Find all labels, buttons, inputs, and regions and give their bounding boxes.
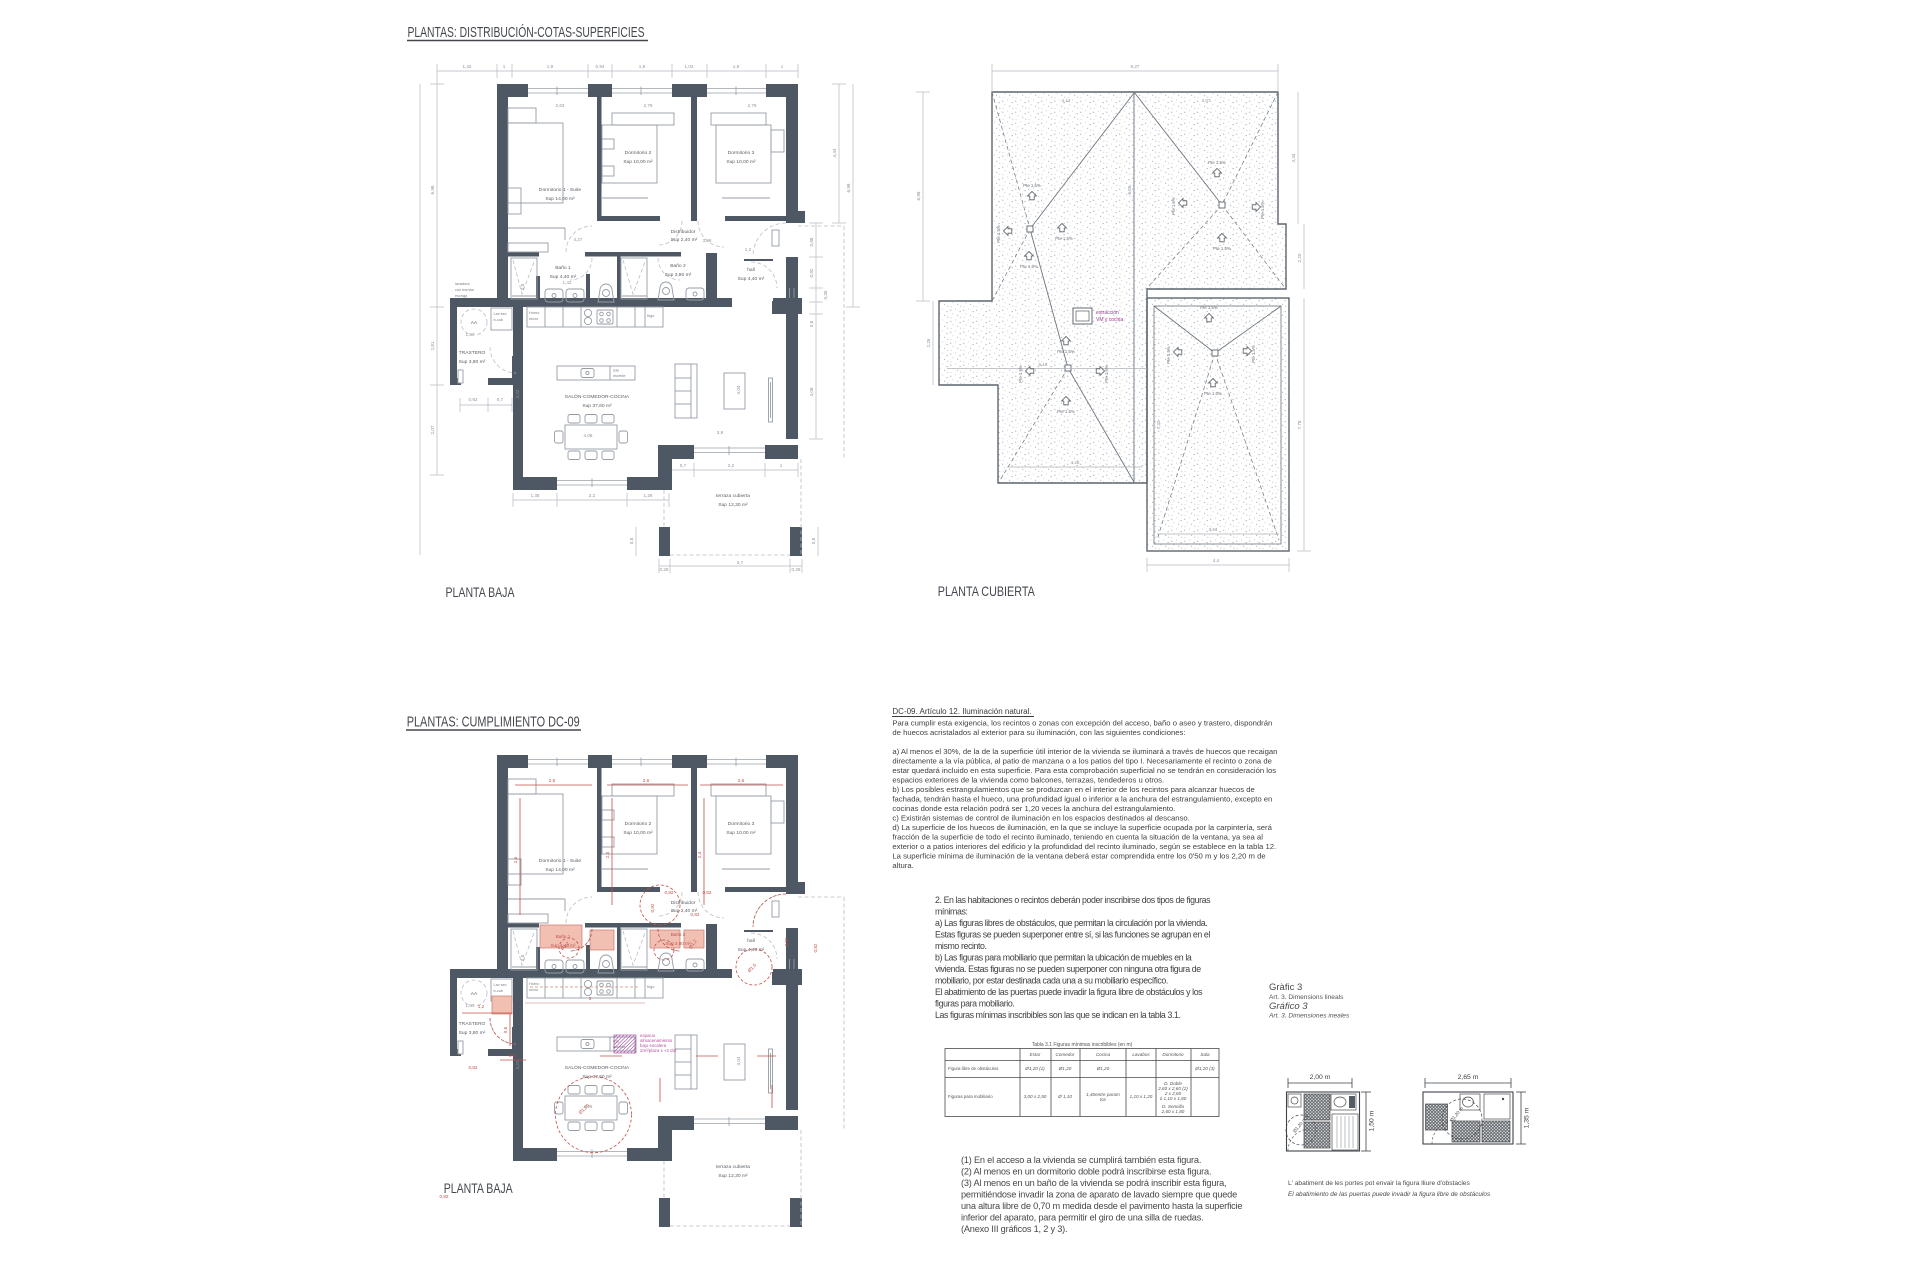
- svg-text:Baño 2: Baño 2: [671, 932, 686, 937]
- svg-text:(2) Al menos en un dormitorio: (2) Al menos en un dormitorio doble podr…: [961, 1167, 1211, 1177]
- svg-text:0,8: 0,8: [629, 537, 634, 544]
- svg-text:Dormitorio: Dormitorio: [1162, 1052, 1184, 1057]
- svg-text:4,07: 4,07: [1202, 98, 1211, 103]
- svg-text:2,00 m: 2,00 m: [1310, 1074, 1331, 1081]
- svg-text:1,35: 1,35: [531, 493, 540, 498]
- svg-text:1,67: 1,67: [466, 332, 475, 337]
- svg-text:2,6: 2,6: [549, 778, 556, 783]
- svg-text:1,26: 1,26: [644, 493, 653, 498]
- svg-text:Dormitorio 3: Dormitorio 3: [728, 150, 755, 156]
- svg-text:Sup 37,60 m²: Sup 37,60 m²: [582, 403, 612, 409]
- svg-text:3: 3: [589, 996, 592, 1001]
- svg-text:DC-09. Artículo 12. Iluminació: DC-09. Artículo 12. Iluminación natural.: [892, 707, 1031, 716]
- svg-text:Gráfico 3: Gráfico 3: [1269, 1001, 1308, 1012]
- svg-text:Lavabos: Lavabos: [1132, 1052, 1150, 1057]
- svg-text:Sup 14,00 m²: Sup 14,00 m²: [545, 196, 575, 202]
- svg-text:6,98: 6,98: [846, 183, 851, 192]
- svg-text:2,2: 2,2: [589, 493, 596, 498]
- svg-text:1,9: 1,9: [639, 64, 646, 69]
- svg-text:4,26: 4,26: [1071, 460, 1080, 465]
- svg-text:El abatimiento de las puertas: El abatimiento de las puertas puede inva…: [1288, 1191, 1491, 1198]
- svg-text:4,4: 4,4: [1213, 558, 1220, 563]
- svg-text:AA: AA: [471, 320, 478, 326]
- svg-text:tos: tos: [1100, 1097, 1107, 1102]
- svg-text:Pte 1.5%: Pte 1.5%: [1020, 264, 1038, 269]
- svg-text:0,26: 0,26: [792, 567, 801, 572]
- svg-text:0,82: 0,82: [784, 937, 789, 946]
- svg-text:6,26: 6,26: [1127, 185, 1132, 194]
- svg-text:7,32: 7,32: [1156, 420, 1161, 429]
- svg-text:Las figuras mínimas inscribibl: Las figuras mínimas inscribibles son las…: [935, 1010, 1181, 1020]
- svg-text:inferior del aparato, para per: inferior del aparato, para permitir el g…: [961, 1213, 1203, 1223]
- svg-text:b) Los posibles estrangulamien: b) Los posibles estrangulamientos que se…: [892, 785, 1254, 794]
- svg-text:0,82: 0,82: [665, 890, 674, 895]
- svg-text:0,92: 0,92: [650, 903, 655, 912]
- svg-text:2,65 m: 2,65 m: [1458, 1074, 1479, 1081]
- svg-text:1,9: 1,9: [547, 64, 554, 69]
- svg-text:Pte 1.5%: Pte 1.5%: [1204, 391, 1222, 396]
- svg-text:3,66: 3,66: [703, 238, 712, 243]
- svg-text:0,88: 0,88: [809, 237, 814, 246]
- svg-text:Ø1,20 (1): Ø1,20 (1): [1024, 1066, 1045, 1071]
- svg-text:PLANTA CUBIERTA: PLANTA CUBIERTA: [938, 583, 1035, 599]
- svg-text:1,42: 1,42: [463, 64, 472, 69]
- svg-text:0,7: 0,7: [497, 397, 504, 402]
- svg-text:1,42: 1,42: [563, 280, 572, 285]
- svg-text:Horno: Horno: [529, 311, 539, 315]
- svg-text:6,98: 6,98: [916, 191, 921, 200]
- svg-text:Pte 1.5%: Pte 1.5%: [1251, 345, 1256, 363]
- svg-text:4,06: 4,06: [584, 433, 593, 438]
- svg-text:espacios exteriores de la vivi: espacios exteriores de la vivienda como …: [892, 776, 1164, 785]
- svg-text:0,6: 0,6: [509, 1053, 516, 1058]
- svg-text:7,78: 7,78: [1297, 420, 1302, 429]
- svg-text:1: 1: [780, 463, 783, 468]
- svg-text:La superficie mínima de ilumin: La superficie mínima de iluminación de l…: [892, 852, 1265, 861]
- svg-text:Figuras para mobiliario: Figuras para mobiliario: [948, 1094, 993, 1099]
- svg-text:2,26: 2,26: [926, 338, 931, 347]
- svg-text:directamente a la vía pública,: directamente a la vía pública, al patio …: [892, 757, 1271, 766]
- svg-text:Pte 1.5%: Pte 1.5%: [1055, 236, 1073, 241]
- svg-text:3,22: 3,22: [515, 389, 520, 398]
- svg-text:PLANTAS: DISTRIBUCIÓN-COTAS-SU: PLANTAS: DISTRIBUCIÓN-COTAS-SUPERFICIES: [408, 24, 645, 41]
- svg-text:0,7: 0,7: [680, 463, 687, 468]
- svg-text:0,92: 0,92: [809, 268, 814, 277]
- svg-text:4,08: 4,08: [809, 387, 814, 396]
- svg-text:Tabla 3.1 Figuras mínimas ins: Tabla 3.1 Figuras mínimas inscribibles (…: [1032, 1042, 1133, 1048]
- svg-text:2,07: 2,07: [430, 425, 435, 434]
- svg-text:PLANTA BAJA: PLANTA BAJA: [444, 1180, 513, 1196]
- svg-text:1,9: 1,9: [733, 64, 740, 69]
- svg-text:escriga: escriga: [455, 294, 468, 298]
- svg-text:4,27: 4,27: [574, 237, 583, 242]
- svg-text:a) Al menos el 30%, de la de l: a) Al menos el 30%, de la de la superfic…: [892, 747, 1277, 756]
- svg-text:0,82: 0,82: [469, 1065, 478, 1070]
- svg-text:1,2: 1,2: [745, 247, 752, 252]
- svg-text:Sala: Sala: [1200, 1052, 1210, 1057]
- svg-text:1,2: 1,2: [478, 1004, 485, 1009]
- svg-text:0,94: 0,94: [596, 64, 605, 69]
- svg-text:c) Existirán sistemas de contr: c) Existirán sistemas de control de ilum…: [892, 814, 1189, 823]
- svg-text:Baño 2: Baño 2: [670, 263, 686, 269]
- svg-text:Pte 1.5%: Pte 1.5%: [1171, 197, 1176, 215]
- svg-text:Ø 1,10: Ø 1,10: [1057, 1094, 1072, 1099]
- svg-text:Ø1,20: Ø1,20: [1096, 1066, 1110, 1071]
- svg-text:1: 1: [781, 64, 784, 69]
- svg-text:fachada, tendrán hasta el huec: fachada, tendrán hasta el hueco, una pro…: [892, 795, 1272, 804]
- svg-text:0,82: 0,82: [813, 943, 818, 952]
- svg-text:frigo: frigo: [647, 314, 654, 318]
- svg-text:2,6: 2,6: [738, 778, 745, 783]
- svg-text:2,6: 2,6: [643, 778, 650, 783]
- svg-text:TRASTERO: TRASTERO: [459, 350, 486, 356]
- svg-text:0,82: 0,82: [703, 890, 712, 895]
- svg-text:2,81: 2,81: [430, 341, 435, 350]
- svg-text:a) Las figuras libres de obstá: a) Las figuras libres de obstáculos, que…: [935, 918, 1207, 928]
- svg-text:mismo recinto.: mismo recinto.: [935, 941, 987, 951]
- svg-text:3,00 x 2,50: 3,00 x 2,50: [1024, 1094, 1047, 1099]
- svg-text:cocinas donde esta relación po: cocinas donde esta relación podrá ser 1,…: [892, 804, 1175, 813]
- svg-text:ó 1,10 x 1,80: ó 1,10 x 1,80: [1160, 1096, 1187, 1101]
- svg-text:0,26: 0,26: [660, 567, 669, 572]
- svg-text:Ø1,5: Ø1,5: [747, 962, 758, 973]
- svg-text:1,10 x 1,20: 1,10 x 1,20: [1130, 1094, 1153, 1099]
- svg-text:figuras para mobiliario.: figuras para mobiliario.: [935, 999, 1014, 1009]
- svg-text:Pte 1.5%: Pte 1.5%: [1213, 246, 1231, 251]
- svg-text:PLANTAS: CUMPLIMIENTO DC-09: PLANTAS: CUMPLIMIENTO DC-09: [407, 714, 580, 731]
- svg-text:Dormitorio 1 - Suite: Dormitorio 1 - Suite: [539, 187, 581, 193]
- svg-text:El abatimiento de las puertas: El abatimiento de las puertas puede inva…: [935, 987, 1203, 997]
- svg-text:3,9: 3,9: [717, 430, 724, 435]
- svg-text:SALÓN-COMEDOR-COCINA: SALÓN-COMEDOR-COCINA: [565, 393, 630, 400]
- svg-text:3,7: 3,7: [737, 560, 744, 565]
- svg-text:2,20: 2,20: [1297, 253, 1302, 262]
- svg-text:Sup 3,80 m²: Sup 3,80 m²: [665, 272, 692, 278]
- svg-text:Ø1,20 m: Ø1,20 m: [1449, 1106, 1464, 1123]
- svg-text:Sup 2,40 m²: Sup 2,40 m²: [671, 237, 698, 243]
- svg-text:(3) Al menos en un baño de la: (3) Al menos en un baño de la vivienda s…: [961, 1178, 1226, 1188]
- svg-text:5,16: 5,16: [1039, 362, 1048, 367]
- svg-text:Pte 1.5%: Pte 1.5%: [1166, 346, 1171, 364]
- svg-text:Comedor: Comedor: [1056, 1052, 1075, 1057]
- svg-text:mínimas:: mínimas:: [935, 907, 967, 917]
- svg-text:d) La superficie de los huecos: d) La superficie de los huecos de ilumin…: [892, 823, 1272, 832]
- svg-text:Art. 3. Dimensiones ineales: Art. 3. Dimensiones ineales: [1268, 1013, 1350, 1020]
- svg-text:Sup 4,40 m²: Sup 4,40 m²: [738, 276, 765, 282]
- svg-text:Pte 1.5%: Pte 1.5%: [1057, 409, 1075, 414]
- svg-text:con bomba: con bomba: [455, 288, 475, 292]
- svg-text:Sup 10,00 m²: Sup 10,00 m²: [623, 159, 653, 165]
- svg-text:Sup 3,80 m²: Sup 3,80 m²: [459, 359, 486, 365]
- svg-text:Estar: Estar: [1030, 1052, 1041, 1057]
- svg-text:Pte 1.5%: Pte 1.5%: [1260, 201, 1265, 219]
- svg-text:Ø1,20 (3): Ø1,20 (3): [1194, 1066, 1215, 1071]
- svg-text:2m²/plaza x +2 dor: 2m²/plaza x +2 dor: [640, 1048, 677, 1053]
- svg-text:Pte 1.5%: Pte 1.5%: [996, 225, 1001, 243]
- svg-text:altura.: altura.: [892, 861, 913, 870]
- svg-text:Pte 1.5%: Pte 1.5%: [1104, 365, 1109, 383]
- svg-text:de huecos acristalados al exte: de huecos acristalados al exterior para …: [892, 728, 1185, 737]
- svg-text:Art. 3. Dimensions lineals: Art. 3. Dimensions lineals: [1269, 994, 1344, 1001]
- svg-text:Figura libre de obstáculos: Figura libre de obstáculos: [948, 1066, 999, 1071]
- svg-text:6,98: 6,98: [430, 185, 435, 194]
- svg-text:Cocina: Cocina: [1096, 1052, 1111, 1057]
- svg-text:L' abatiment de les portes pot: L' abatiment de les portes pot envair la…: [1288, 1180, 1470, 1187]
- svg-text:PLANTA BAJA: PLANTA BAJA: [446, 584, 515, 600]
- svg-text:mueble: mueble: [613, 374, 625, 378]
- svg-text:b-cub: b-cub: [494, 318, 504, 322]
- svg-text:Baño 1: Baño 1: [555, 265, 571, 271]
- svg-text:1,02: 1,02: [685, 64, 694, 69]
- svg-text:2,4: 2,4: [697, 851, 702, 858]
- svg-text:extracción: extracción: [1096, 310, 1119, 316]
- svg-text:mobiliario, por estar destinad: mobiliario, por estar destinada cada una…: [935, 976, 1168, 986]
- svg-text:b) Las figuras para mobiliario: b) Las figuras para mobiliario que permi…: [935, 953, 1192, 963]
- svg-text:vivienda. Estas figuras no se: vivienda. Estas figuras no se pueden sup…: [935, 964, 1201, 974]
- svg-text:Sup 10,00 m²: Sup 10,00 m²: [726, 159, 756, 165]
- svg-text:Para cumplir esta exigencia, l: Para cumplir esta exigencia, los recinto…: [892, 719, 1272, 728]
- svg-text:1,50 m: 1,50 m: [1369, 1110, 1376, 1131]
- svg-text:2. En las habitaciones o recin: 2. En las habitaciones o recintos deberá…: [935, 895, 1211, 905]
- svg-text:0,82: 0,82: [691, 912, 700, 917]
- svg-text:0,8: 0,8: [811, 537, 816, 544]
- svg-text:4,04: 4,04: [736, 385, 741, 394]
- svg-text:4,14: 4,14: [1062, 98, 1071, 103]
- svg-text:Dormitorio 2: Dormitorio 2: [625, 150, 652, 156]
- svg-text:permitiéndose invadir la zona: permitiéndose invadir la zona de aparato…: [961, 1190, 1237, 1200]
- svg-text:VM y cocina: VM y cocina: [1096, 317, 1123, 323]
- svg-text:2,6: 2,6: [513, 856, 518, 863]
- svg-text:3,64: 3,64: [1209, 527, 1218, 532]
- svg-text:terraza cubierta: terraza cubierta: [716, 493, 750, 499]
- svg-text:exterior o a patios interiores: exterior o a patios interiores del edifi…: [892, 842, 1276, 851]
- svg-text:micro: micro: [529, 317, 538, 321]
- svg-text:0,35: 0,35: [823, 290, 828, 299]
- svg-text:isla: isla: [613, 369, 620, 373]
- svg-text:2,79: 2,79: [644, 103, 653, 108]
- svg-text:Pte 1.5%: Pte 1.5%: [1208, 160, 1226, 165]
- svg-text:Pte 1.5%: Pte 1.5%: [1023, 183, 1041, 188]
- svg-text:Distribuidor: Distribuidor: [671, 229, 696, 235]
- svg-text:4,44: 4,44: [1291, 153, 1296, 162]
- svg-text:Pte 1.5%: Pte 1.5%: [1200, 305, 1218, 310]
- svg-text:Ø1,20: Ø1,20: [1058, 1066, 1072, 1071]
- svg-text:0,6: 0,6: [503, 1026, 508, 1033]
- svg-text:Pte 1.5%: Pte 1.5%: [1018, 365, 1023, 383]
- svg-text:Sup 12,30 m²: Sup 12,30 m²: [718, 502, 748, 508]
- svg-text:hall: hall: [747, 267, 755, 273]
- svg-text:fracción de la superficie de t: fracción de la superficie de todo el rec…: [892, 833, 1263, 842]
- svg-text:0,92: 0,92: [469, 397, 478, 402]
- svg-text:estar quedará incluido en esta: estar quedará incluido en esta superfici…: [892, 766, 1276, 775]
- svg-text:Lav sec: Lav sec: [494, 312, 507, 316]
- svg-text:2,60 x 1,80: 2,60 x 1,80: [1161, 1109, 1185, 1114]
- svg-text:Estas figuras se pueden superp: Estas figuras se pueden superponer entre…: [935, 930, 1210, 940]
- svg-text:(1) En el acceso a la vivienda: (1) En el acceso a la vivienda se cumpli…: [961, 1155, 1201, 1165]
- svg-text:(Anexo III gráficos 1, 2 y 3).: (Anexo III gráficos 1, 2 y 3).: [961, 1224, 1067, 1234]
- svg-text:2,4: 2,4: [605, 851, 610, 858]
- svg-text:2,63: 2,63: [556, 103, 565, 108]
- svg-text:2,79: 2,79: [748, 103, 757, 108]
- svg-text:9,27: 9,27: [1131, 64, 1140, 69]
- svg-text:Gràfic 3: Gràfic 3: [1269, 982, 1302, 993]
- svg-text:2,2: 2,2: [728, 463, 735, 468]
- svg-text:Pte 1.5%: Pte 1.5%: [1057, 349, 1075, 354]
- svg-text:0,8: 0,8: [520, 283, 525, 290]
- svg-text:1: 1: [503, 64, 506, 69]
- svg-text:0,82: 0,82: [440, 1194, 449, 1199]
- svg-text:una altura libre de 0,70 m med: una altura libre de 0,70 m medida desde …: [961, 1201, 1242, 1211]
- svg-text:lavadora: lavadora: [455, 282, 470, 286]
- svg-text:1,35 m: 1,35 m: [1524, 1107, 1531, 1128]
- svg-text:0,8: 0,8: [809, 320, 814, 327]
- svg-text:4,44: 4,44: [832, 148, 837, 157]
